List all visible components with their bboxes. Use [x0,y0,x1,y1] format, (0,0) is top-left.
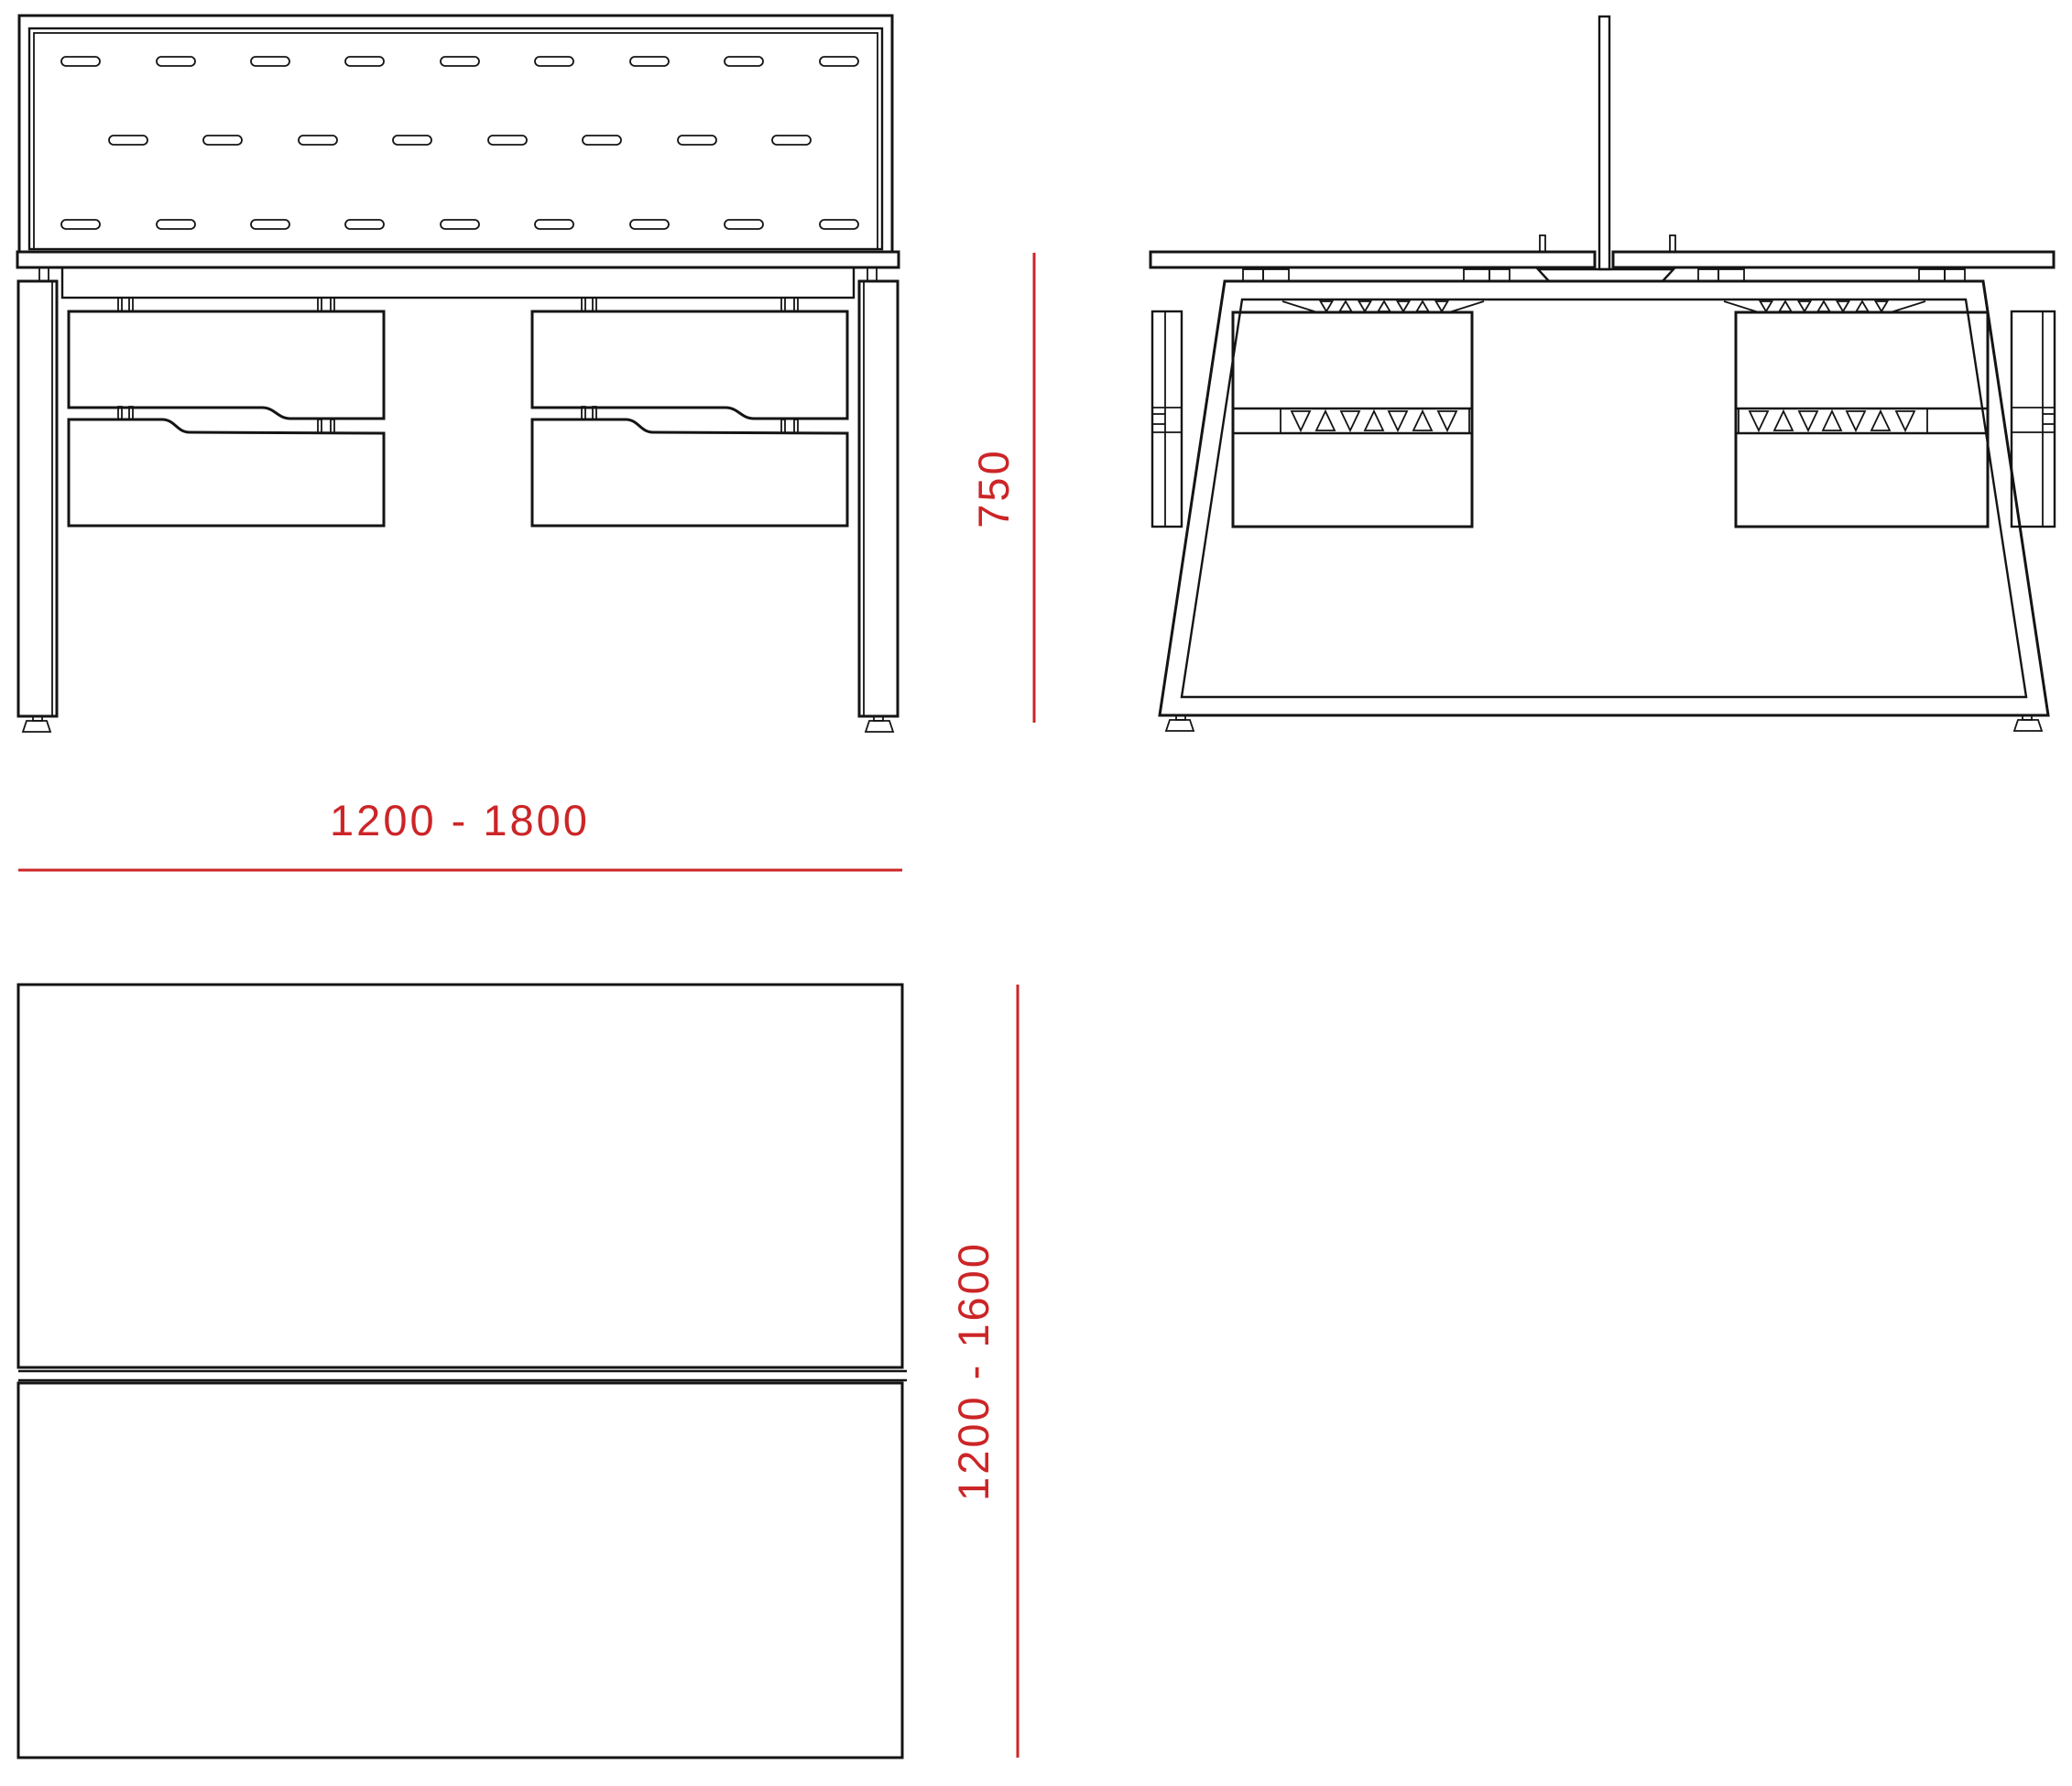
a-frame-leg [1160,281,2048,715]
side-view [1151,16,2055,731]
bench-desk-drawing: 1200 - 1800 750 1200 - 1600 [0,0,2072,1786]
plan-view [18,985,907,1758]
adjustable-foot [23,716,50,732]
drawer-pedestal-front [69,298,384,526]
chamfer-line [1724,301,1759,312]
screen-clamp-right [1670,235,1675,252]
screen-panel-slots-row-3 [61,220,858,229]
handle-triangles-top-band [1321,301,1448,311]
drawer-pedestal-side-left [1233,301,1484,527]
dimensions: 1200 - 1800 750 1200 - 1600 [18,253,1034,1758]
desktop-plan-bottom [18,1383,902,1758]
height-dimension-label: 750 [969,448,1018,528]
screen-panel [19,16,892,252]
desktop-side-right [1613,252,2054,267]
adjustable-foot [2014,715,2042,731]
lower-drawer [69,419,384,526]
desktop-side-left [1151,252,1595,267]
divider-screen-edge [1599,16,1609,269]
adjustable-foot [1166,715,1194,731]
chamfer-line [1282,301,1317,312]
handle-triangles-mid-band [1750,411,1914,430]
chamfer-line [1449,301,1484,312]
width-dimension-label: 1200 - 1800 [330,796,590,844]
leg-left-front [18,267,57,732]
screen-panel-slots-row-2 [109,136,811,145]
desktop-mounting-blocks [1243,269,1965,281]
screen-panel-slots-row-1 [61,57,858,66]
drawer-pedestal-front-right [532,298,847,526]
desktop-front [17,252,899,267]
rear-pedestal-edge-left [1152,311,1182,527]
drawer-pedestal-side-right [1724,301,1988,527]
depth-dimension-label: 1200 - 1600 [949,1241,998,1501]
technical-drawing-canvas: 1200 - 1800 750 1200 - 1600 [0,0,2072,1786]
centre-link-bracket [1538,269,1674,281]
upper-drawer [69,311,384,419]
rear-pedestal-edge-right [2012,311,2055,527]
desktop-plan-top [18,985,902,1367]
leg-top-connector [867,267,877,281]
leg-right-front [859,267,898,732]
handle-triangles-top-band [1761,301,1888,311]
chamfer-line [1891,301,1925,312]
front-view [17,16,899,732]
screen-clamp-left [1540,235,1545,252]
handle-triangles-mid-band [1292,411,1456,430]
under-desk-rail [62,267,854,298]
screen-panel-frame [19,16,892,252]
drawer-suspension-tabs [118,298,334,433]
leg-top-connector [39,267,49,281]
adjustable-foot [866,716,893,732]
